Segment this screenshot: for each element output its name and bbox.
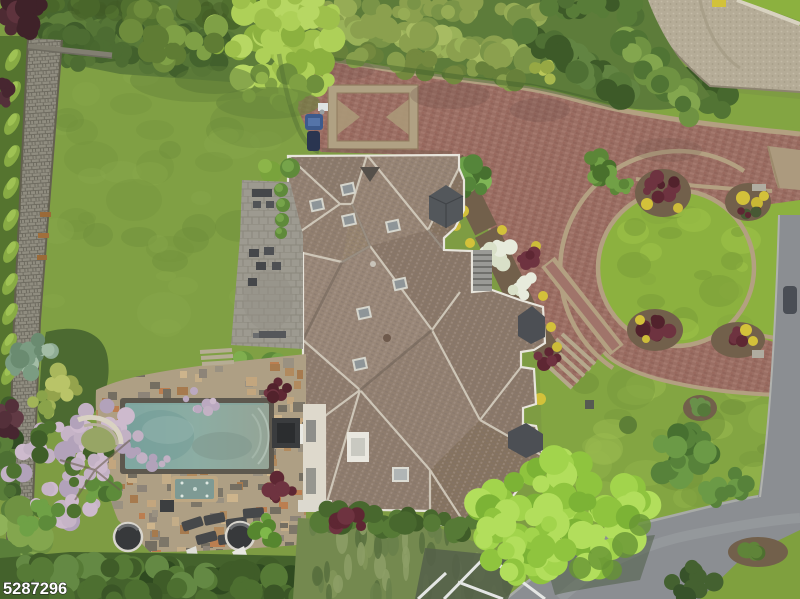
svg-text:5287296: 5287296	[3, 580, 67, 598]
